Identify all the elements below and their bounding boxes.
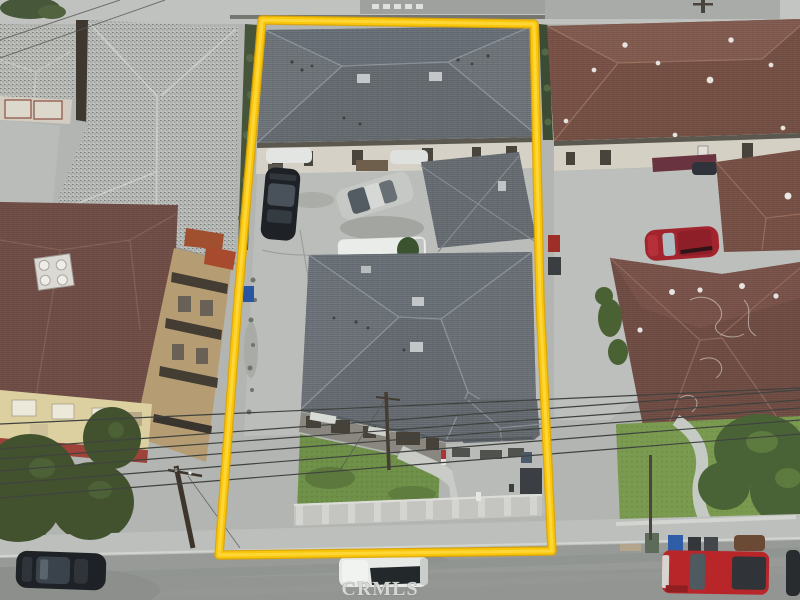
svg-text:CRMLS: CRMLS xyxy=(341,578,418,600)
